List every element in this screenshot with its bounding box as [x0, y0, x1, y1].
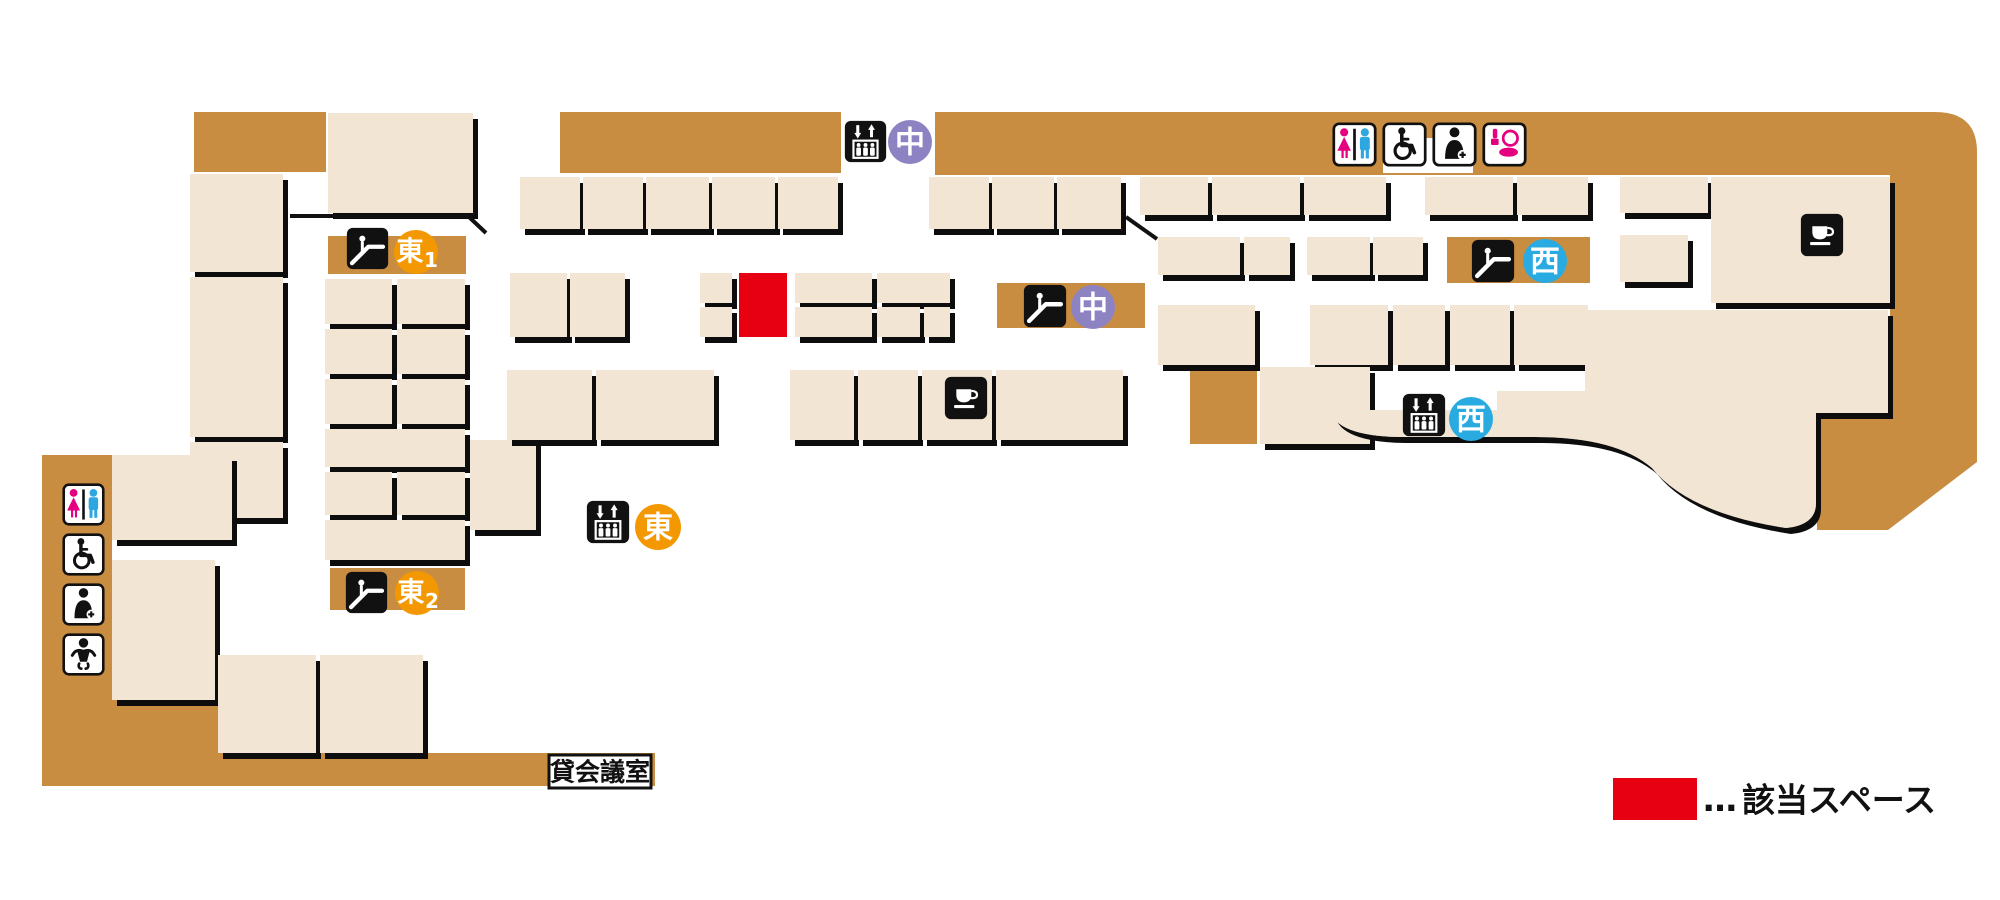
room: [520, 177, 580, 229]
shop-rooms: [112, 113, 1890, 753]
floor-map: 中 東 1 東 2 中 西 西 東: [0, 0, 2000, 900]
room: [1425, 177, 1513, 215]
room: [397, 472, 465, 515]
elevator-icon: [845, 121, 886, 162]
highlighted-space: [739, 273, 787, 337]
center-elevator-label: 中: [895, 126, 925, 161]
escalator-icon: [346, 572, 387, 613]
room: [646, 177, 709, 229]
escalator-icon: [1024, 285, 1066, 327]
room: [1158, 237, 1240, 275]
room: [325, 520, 465, 560]
room: [320, 655, 423, 753]
room: [397, 379, 465, 424]
room: [1244, 237, 1290, 275]
east1-number: 1: [424, 248, 438, 272]
first-aid-room-icon: [64, 585, 104, 625]
marker-east-elevator: 東: [587, 501, 681, 550]
east2-label: 東: [398, 578, 425, 609]
room: [790, 370, 854, 440]
room: [1373, 237, 1423, 275]
floor-block-top-left: [194, 112, 326, 172]
room: [795, 307, 872, 337]
cafe-icon: [1801, 214, 1843, 256]
escalator-icon: [1472, 240, 1514, 282]
cafe-icon: [945, 377, 987, 419]
room: [570, 273, 625, 337]
legend-dots: …: [1703, 780, 1737, 820]
room: [507, 370, 592, 440]
room: [1450, 305, 1510, 365]
room: [1517, 177, 1588, 215]
room: [992, 177, 1054, 229]
powder-room-icon: [1484, 124, 1525, 165]
rental-meeting-room: 貸会議室: [549, 755, 651, 788]
room: [778, 177, 838, 229]
toilet-icon: [64, 485, 104, 525]
room: [700, 273, 732, 303]
room: [1310, 305, 1388, 365]
room: [877, 307, 920, 337]
room: [877, 273, 950, 303]
legend: … 該当スペース: [1613, 778, 1936, 820]
east-elevator-label: 東: [643, 511, 673, 546]
wheelchair-icon: [1384, 124, 1425, 165]
center-escalator-label: 中: [1078, 291, 1108, 326]
rental-meeting-room-label: 貸会議室: [550, 758, 650, 787]
room: [510, 273, 567, 337]
room: [1393, 305, 1445, 365]
room: [1158, 305, 1255, 365]
room: [325, 472, 392, 515]
east2-number: 2: [425, 589, 439, 613]
room: [218, 655, 316, 753]
baby-care-room-icon: [64, 635, 104, 675]
room: [1140, 177, 1208, 215]
room: [190, 277, 283, 437]
room: [1620, 235, 1688, 282]
floor-band-center-escalator: [997, 283, 1145, 328]
legend-label: 該当スペース: [1742, 781, 1936, 820]
room: [596, 370, 714, 440]
room: [328, 113, 473, 213]
room: [583, 177, 643, 229]
west-elevator-label: 西: [1456, 403, 1486, 438]
room: [858, 370, 918, 440]
first-aid-room-icon: [1434, 124, 1475, 165]
room: [397, 329, 465, 374]
room: [190, 174, 283, 272]
corridor-line: [290, 216, 486, 233]
marker-center-elevator: 中: [845, 120, 932, 164]
room: [325, 329, 392, 374]
room: [795, 273, 872, 303]
room: [1620, 177, 1708, 213]
room: [470, 440, 536, 530]
room: [1212, 177, 1300, 215]
room: [924, 307, 950, 337]
west-escalator-label: 西: [1530, 245, 1560, 280]
east1-label: 東: [397, 237, 424, 268]
room: [929, 177, 989, 229]
escalator-icon: [347, 228, 388, 269]
room: [325, 279, 392, 324]
room: [1307, 237, 1370, 275]
room: [325, 429, 465, 467]
corridor-line: [1126, 217, 1157, 239]
floor-band-west-escalator: [1447, 237, 1590, 283]
legend-swatch: [1613, 778, 1697, 820]
room: [397, 279, 465, 324]
wheelchair-icon: [64, 535, 104, 575]
room-cafe-west: [1711, 177, 1890, 303]
floor-band-top-center: [560, 112, 841, 173]
room: [325, 379, 392, 424]
toilet-icon: [1334, 124, 1375, 165]
room: [712, 177, 775, 229]
room: [112, 455, 232, 540]
floor-block-center: [1190, 367, 1257, 444]
room: [1514, 305, 1588, 365]
room: [1304, 177, 1386, 215]
elevator-icon: [587, 501, 629, 543]
room: [1260, 367, 1370, 444]
elevator-icon: [1403, 394, 1445, 436]
room: [1057, 177, 1121, 229]
room: [112, 560, 215, 700]
room: [700, 307, 732, 337]
room: [996, 370, 1123, 440]
